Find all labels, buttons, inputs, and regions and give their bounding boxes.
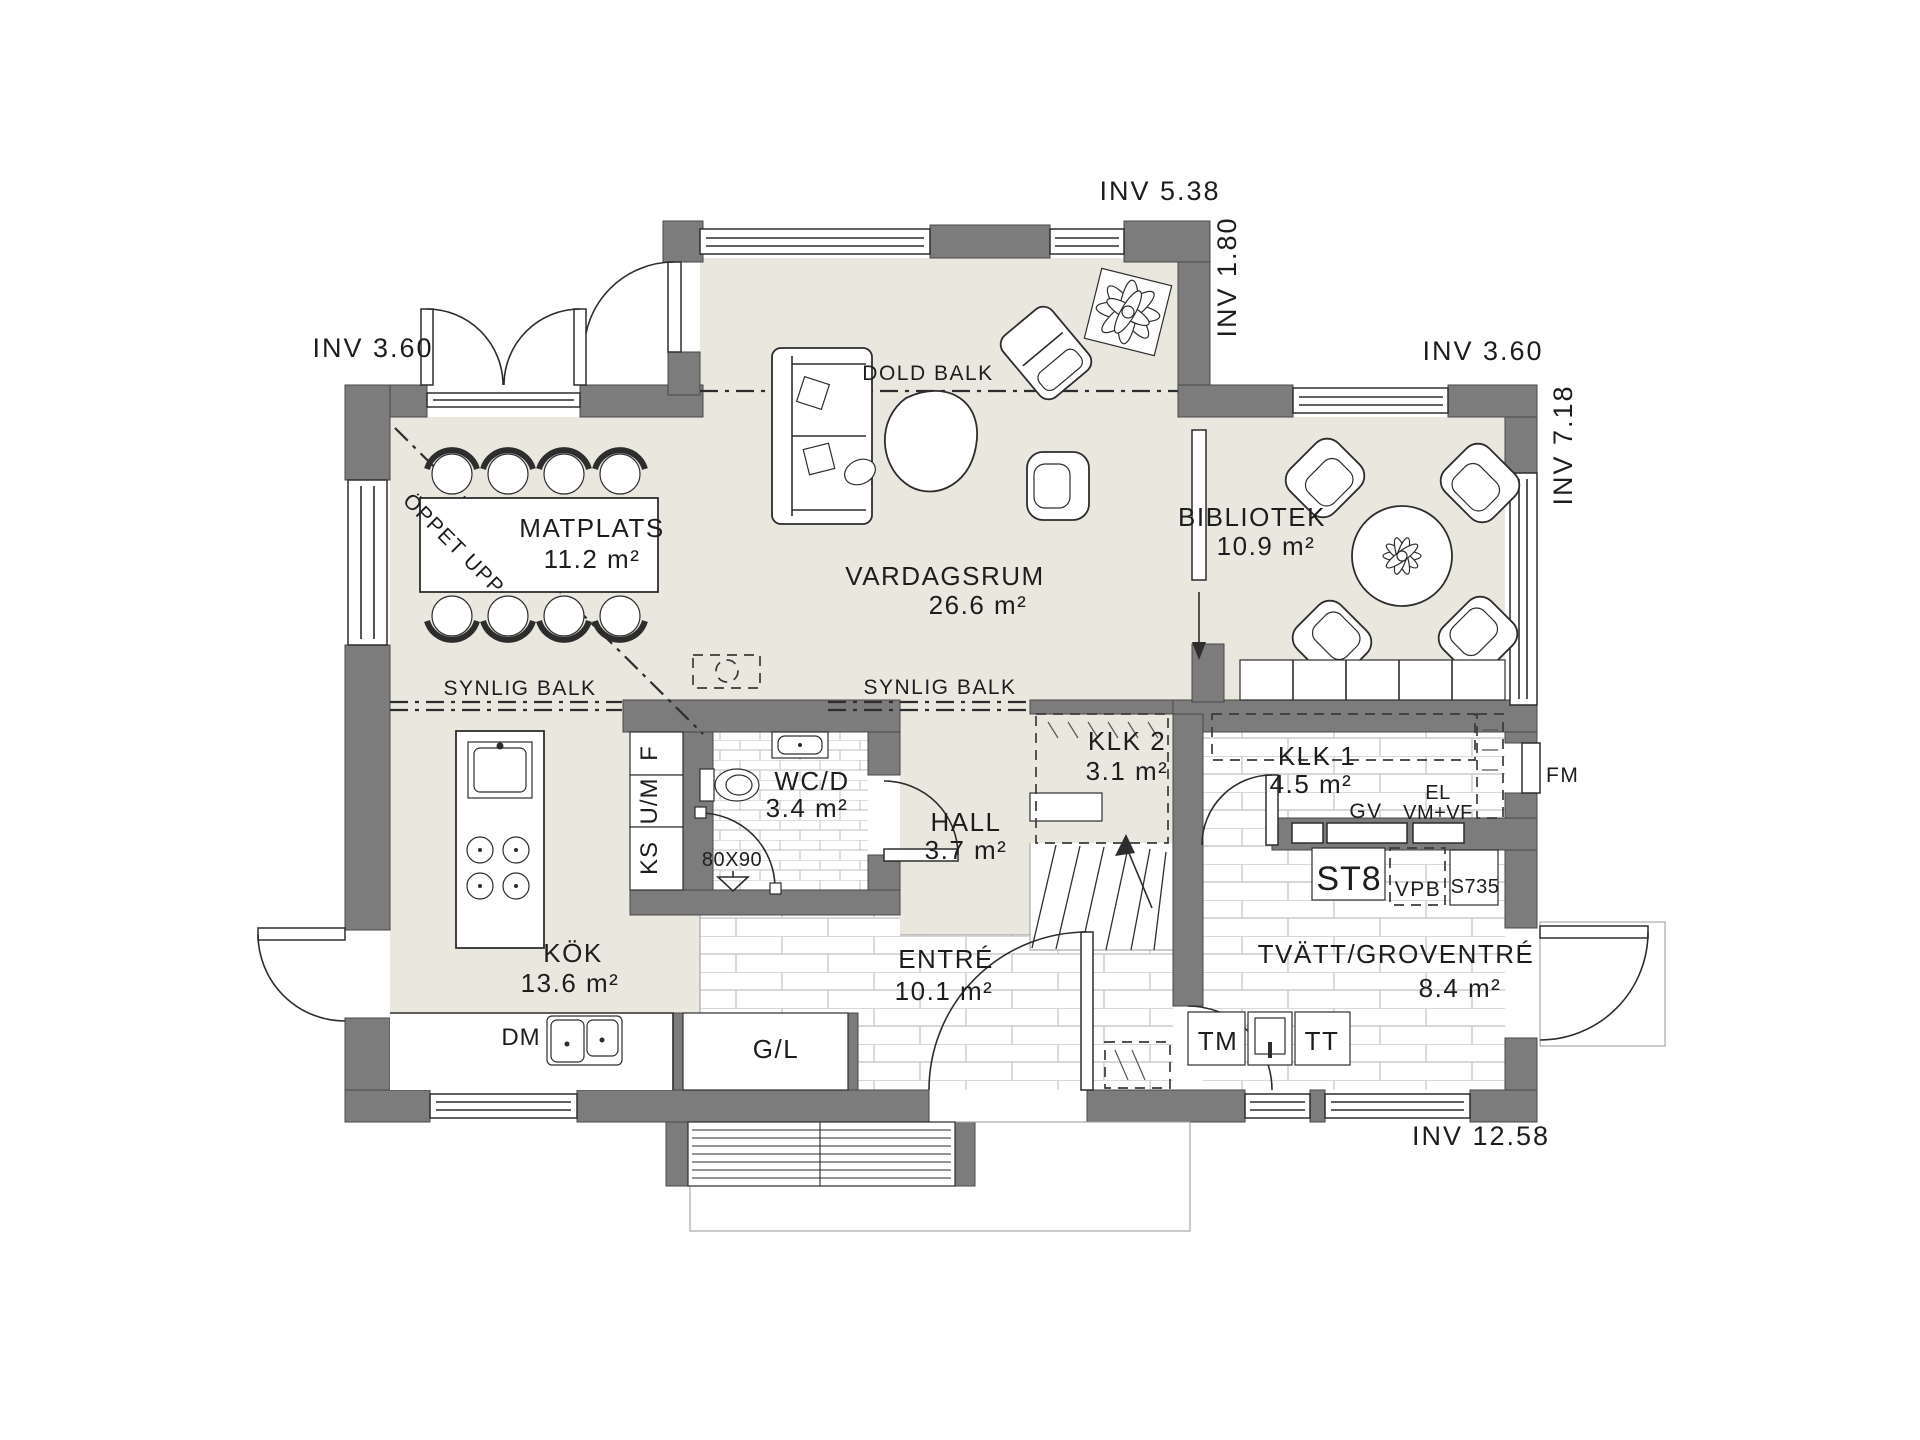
- label-tt: TT: [1305, 1026, 1340, 1056]
- room-label-wc: WC/D: [774, 766, 849, 796]
- room-area-hall: 3.7 m²: [925, 835, 1008, 865]
- wall-slot: [1292, 823, 1323, 843]
- label-fm: FM: [1546, 764, 1579, 787]
- shower-size-label: 80X90: [702, 849, 762, 871]
- floorplan-page: MATPLATS 11.2 m² VARDAGSRUM 26.6 m² BIBL…: [0, 0, 1920, 1440]
- room-label-vardagsrum: VARDAGSRUM: [845, 561, 1044, 591]
- room-area-wc: 3.4 m²: [766, 793, 849, 823]
- room-label-entre: ENTRÉ: [898, 944, 994, 974]
- synlig-balk-label-left: SYNLIG BALK: [443, 677, 596, 700]
- room-area-entre: 10.1 m²: [895, 976, 994, 1006]
- room-area-klk2: 3.1 m²: [1086, 756, 1169, 786]
- dim-bottom: INV 12.58: [1412, 1121, 1550, 1151]
- window: [700, 229, 930, 254]
- window: [1325, 1094, 1470, 1118]
- room-area-klk1: 4.5 m²: [1270, 769, 1353, 799]
- window: [348, 480, 387, 645]
- label-ks: KS: [636, 841, 663, 875]
- library-shelf: [1240, 660, 1505, 700]
- dold-balk-label: DOLD BALK: [862, 362, 993, 385]
- sofa: [772, 348, 872, 524]
- label-f: F: [636, 745, 663, 761]
- room-label-kok: KÖK: [543, 938, 602, 968]
- label-gl: G/L: [753, 1034, 799, 1064]
- room-label-klk1: KLK 1: [1278, 741, 1356, 771]
- tvatt-door-leaf: [1540, 926, 1648, 938]
- label-s735: S735: [1451, 876, 1500, 898]
- kitchen-island: [456, 731, 544, 948]
- label-um: U/M: [636, 778, 663, 825]
- kok-door-leaf: [258, 928, 345, 940]
- dim-top-right: INV 1.80: [1212, 216, 1242, 337]
- label-dm: DM: [501, 1024, 540, 1051]
- washbasin: [772, 732, 828, 758]
- label-vmvf: VM+VF: [1403, 802, 1473, 824]
- stair-handrail: [1030, 793, 1102, 821]
- tvatt-door-swing: [1540, 932, 1648, 1040]
- vmvf-slot: [1413, 823, 1464, 843]
- label-vpb: VPB: [1395, 878, 1442, 901]
- synlig-balk-label-right: SYNLIG BALK: [863, 676, 1016, 699]
- room-area-vardagsrum: 26.6 m²: [929, 590, 1028, 620]
- floorplan-drawing: MATPLATS 11.2 m² VARDAGSRUM 26.6 m² BIBL…: [0, 0, 1920, 1440]
- gv-slot: [1327, 823, 1407, 843]
- window: [1293, 388, 1448, 413]
- window: [1050, 229, 1124, 254]
- coffee-table: [885, 391, 977, 492]
- dim-right-upper: INV 3.60: [1422, 336, 1543, 366]
- side-porch: [1540, 922, 1665, 1046]
- label-tm: TM: [1198, 1026, 1239, 1056]
- french-door-swings: [427, 309, 580, 385]
- room-area-kok: 13.6 m²: [521, 968, 620, 998]
- dim-top: INV 5.38: [1099, 176, 1220, 206]
- double-sink: [547, 1016, 622, 1065]
- room-area-bibliotek: 10.9 m²: [1217, 531, 1316, 561]
- terrace-door-swing: [584, 262, 674, 352]
- room-label-matplats: MATPLATS: [519, 513, 664, 543]
- kok-door-swing: [258, 934, 345, 1021]
- room-area-tvatt: 8.4 m²: [1419, 973, 1502, 1003]
- entry-porch: [688, 1122, 1190, 1231]
- dim-left: INV 3.60: [312, 333, 433, 363]
- window: [1510, 473, 1537, 705]
- window: [1245, 1094, 1310, 1118]
- toilet: [700, 769, 759, 801]
- room-label-bibliotek: BIBLIOTEK: [1178, 502, 1326, 532]
- label-st8: ST8: [1316, 860, 1381, 898]
- front-door-leaf: [1081, 932, 1093, 1090]
- room-area-matplats: 11.2 m²: [544, 544, 641, 574]
- room-label-klk2: KLK 2: [1088, 726, 1166, 756]
- room-label-tvatt: TVÄTT/GROVENTRÉ: [1258, 939, 1535, 969]
- label-gv: GV: [1349, 800, 1382, 823]
- label-el: EL: [1425, 782, 1450, 804]
- fm-cabinet: [1522, 743, 1540, 793]
- terrace-door-leaf: [668, 262, 681, 352]
- dim-right-side: INV 7.18: [1548, 384, 1578, 505]
- french-door-leaf: [574, 309, 586, 385]
- room-label-hall: HALL: [930, 807, 1001, 837]
- window: [430, 1094, 577, 1118]
- armchair: [1027, 452, 1089, 520]
